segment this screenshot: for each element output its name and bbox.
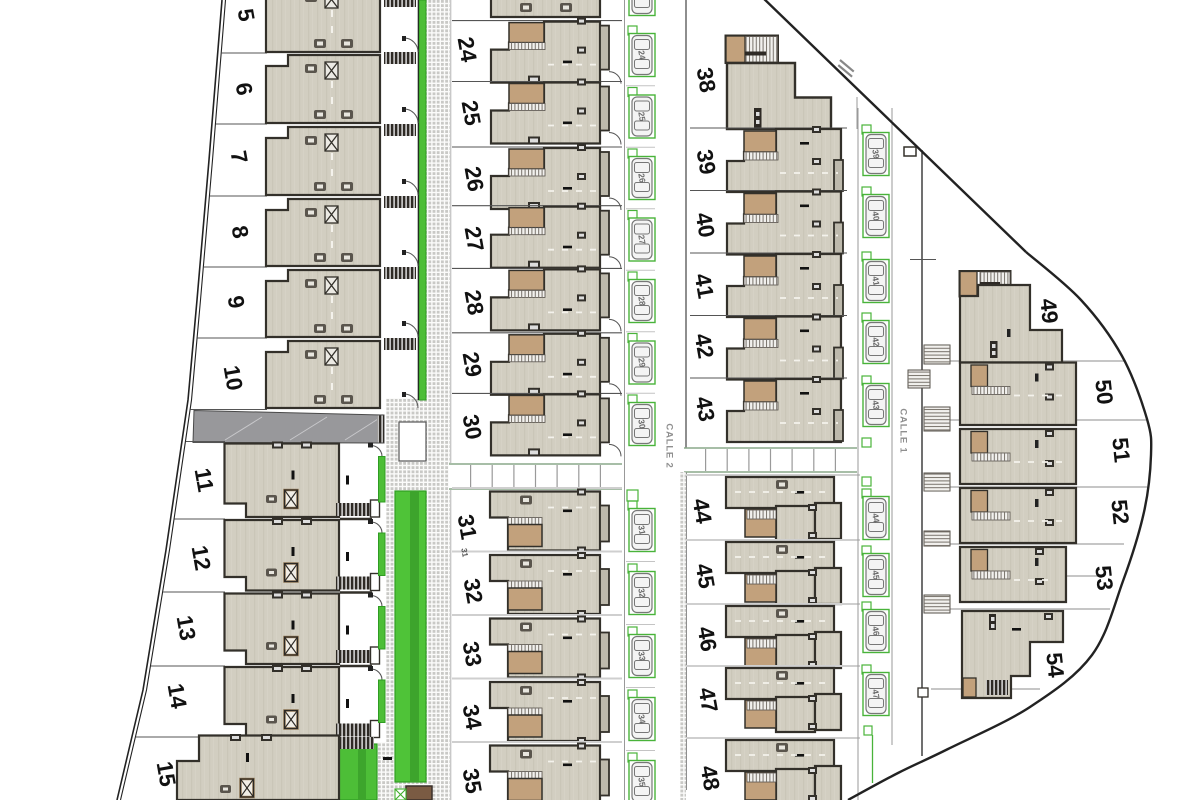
svg-text:11: 11 — [190, 466, 219, 494]
svg-text:43: 43 — [691, 395, 720, 424]
svg-text:47: 47 — [694, 686, 723, 715]
svg-text:41: 41 — [690, 272, 719, 301]
svg-text:46: 46 — [693, 625, 722, 654]
svg-text:CALLE 2: CALLE 2 — [664, 423, 675, 468]
svg-text:35: 35 — [458, 767, 487, 796]
svg-text:32: 32 — [459, 577, 488, 606]
svg-text:48: 48 — [696, 764, 725, 793]
svg-text:28: 28 — [636, 295, 648, 306]
svg-text:43: 43 — [870, 399, 882, 410]
svg-text:47: 47 — [870, 688, 882, 699]
svg-text:40: 40 — [691, 211, 720, 240]
svg-text:44: 44 — [688, 497, 717, 526]
svg-text:41: 41 — [870, 275, 882, 286]
svg-text:24: 24 — [453, 35, 482, 64]
svg-text:34: 34 — [636, 713, 648, 724]
svg-text:28: 28 — [460, 288, 489, 317]
svg-text:CALLE 1: CALLE 1 — [898, 408, 909, 453]
svg-text:24: 24 — [636, 49, 648, 60]
svg-text:25: 25 — [636, 111, 648, 122]
svg-text:29: 29 — [458, 350, 487, 379]
svg-text:45: 45 — [870, 569, 882, 580]
svg-text:39: 39 — [870, 148, 882, 159]
svg-text:45: 45 — [691, 562, 720, 591]
svg-text:33: 33 — [636, 650, 648, 661]
svg-text:35: 35 — [636, 776, 648, 787]
svg-text:44: 44 — [870, 512, 882, 523]
svg-text:30: 30 — [458, 413, 487, 442]
svg-text:49: 49 — [1035, 297, 1062, 325]
svg-text:12: 12 — [187, 544, 216, 573]
svg-text:26: 26 — [460, 165, 489, 194]
svg-text:31: 31 — [636, 524, 648, 535]
svg-text:13: 13 — [172, 614, 201, 643]
svg-text:27: 27 — [636, 234, 648, 245]
svg-text:51: 51 — [1107, 436, 1134, 464]
svg-text:50: 50 — [1090, 378, 1117, 406]
svg-text:30: 30 — [636, 418, 648, 429]
svg-text:33: 33 — [458, 640, 487, 669]
svg-text:29: 29 — [636, 357, 648, 368]
svg-text:40: 40 — [870, 210, 882, 221]
svg-text:34: 34 — [458, 703, 487, 732]
svg-text:39: 39 — [692, 148, 721, 177]
svg-text:25: 25 — [457, 99, 486, 128]
svg-text:15: 15 — [152, 760, 181, 789]
svg-text:46: 46 — [870, 625, 882, 636]
svg-text:52: 52 — [1106, 498, 1133, 526]
svg-text:42: 42 — [690, 332, 719, 361]
svg-text:27: 27 — [460, 225, 489, 254]
svg-text:10: 10 — [219, 364, 248, 393]
svg-text:32: 32 — [636, 587, 648, 598]
svg-text:14: 14 — [163, 682, 192, 711]
svg-text:42: 42 — [870, 336, 882, 347]
svg-text:26: 26 — [636, 172, 648, 183]
svg-text:31: 31 — [453, 513, 482, 542]
svg-text:53: 53 — [1090, 564, 1117, 592]
svg-text:54: 54 — [1041, 651, 1069, 679]
svg-text:38: 38 — [692, 66, 721, 95]
